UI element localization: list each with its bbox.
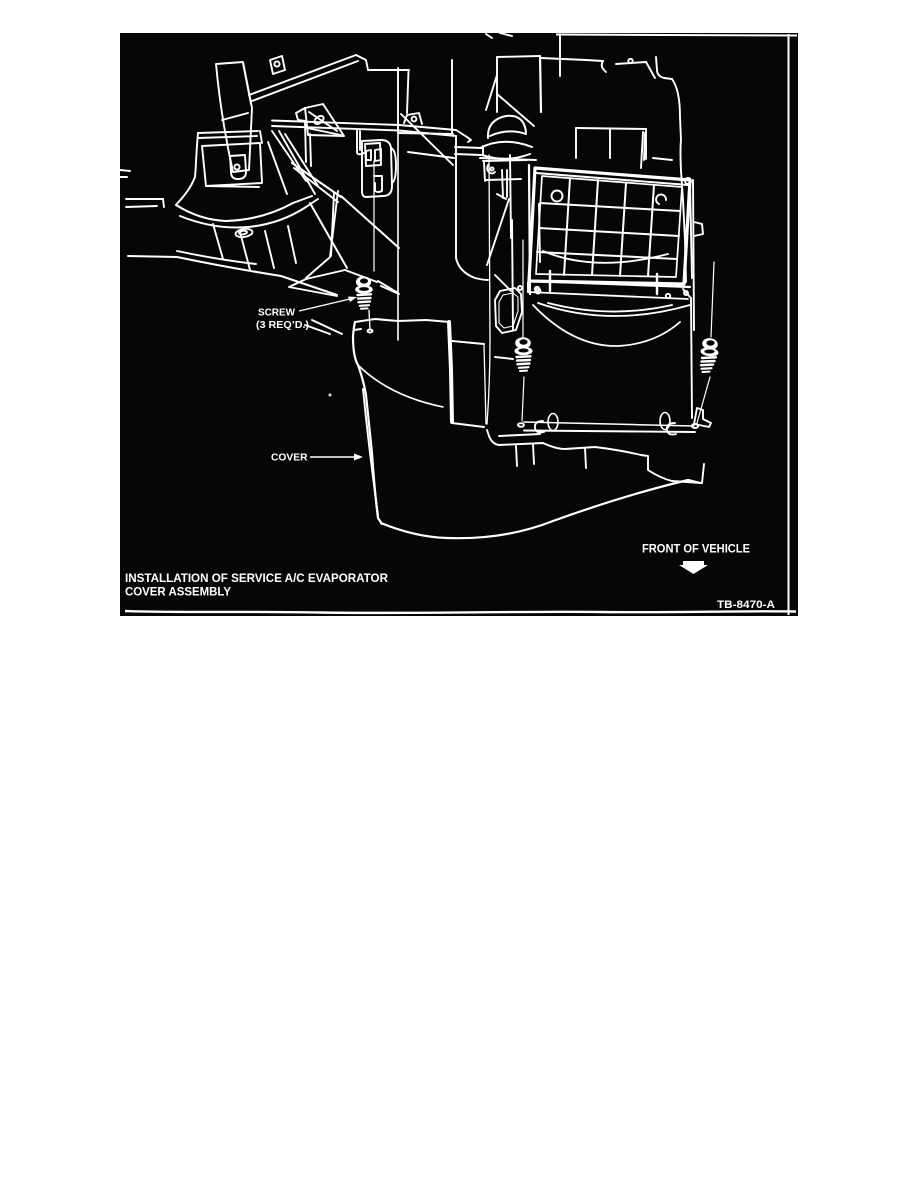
svg-text:(3 REQ’D.): (3 REQ’D.) bbox=[256, 319, 309, 331]
svg-text:FRONT OF VEHICLE: FRONT OF VEHICLE bbox=[642, 542, 750, 556]
svg-text:SCREW: SCREW bbox=[258, 307, 295, 319]
svg-text:COVER ASSEMBLY: COVER ASSEMBLY bbox=[125, 585, 231, 599]
svg-text:COVER: COVER bbox=[271, 452, 308, 464]
svg-text:TB-8470-A: TB-8470-A bbox=[717, 599, 775, 611]
svg-text:INSTALLATION OF SERVICE A/C EV: INSTALLATION OF SERVICE A/C EVAPORATOR bbox=[125, 571, 388, 585]
